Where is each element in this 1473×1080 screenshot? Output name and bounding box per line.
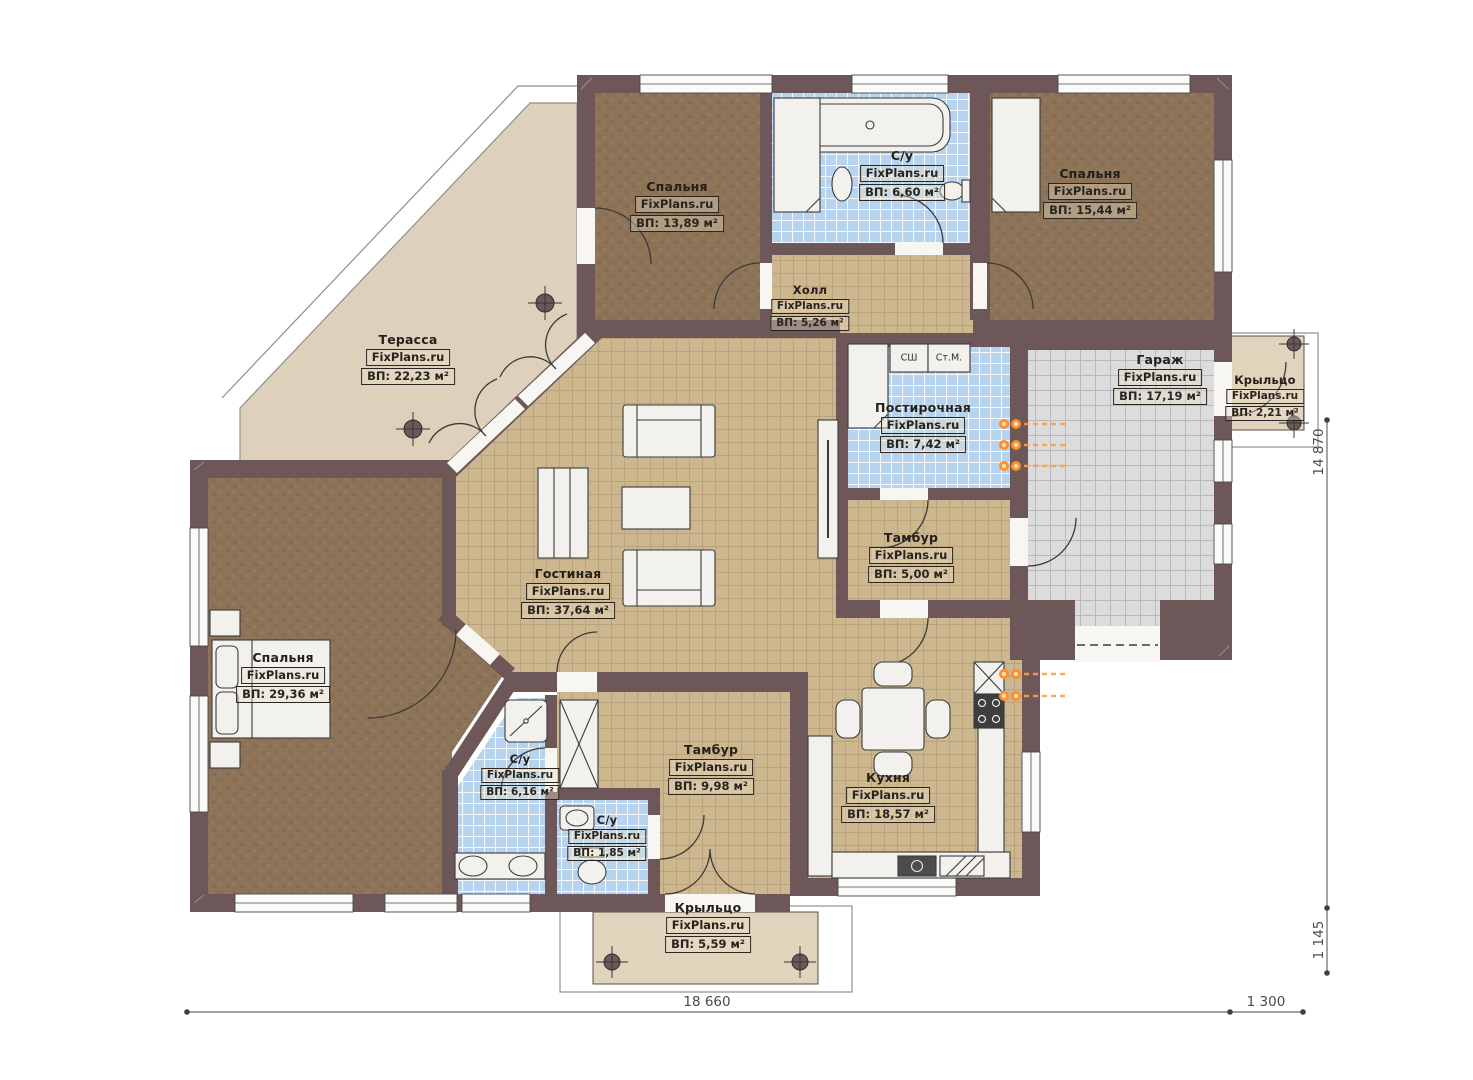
area-box: ВП: 15,44 м² xyxy=(1043,202,1137,219)
brand-box: FixPlans.ru xyxy=(669,759,754,776)
room-label-kitchen: Кухня FixPlans.ru ВП: 18,57 м² xyxy=(841,770,935,823)
room-label-terrace: Терасса FixPlans.ru ВП: 22,23 м² xyxy=(361,332,455,385)
room-label-bedroom-top-left: Спальня FixPlans.ru ВП: 13,89 м² xyxy=(630,179,724,232)
room-label-bedroom-left: Спальня FixPlans.ru ВП: 29,36 м² xyxy=(236,650,330,703)
room-label-bathroom-185: С/у FixPlans.ru ВП: 1,85 м² xyxy=(567,813,646,861)
bathtub xyxy=(800,98,950,152)
area-box: ВП: 22,23 м² xyxy=(361,368,455,385)
wardrobe xyxy=(992,98,1040,212)
double-washbasin xyxy=(455,853,545,879)
stove xyxy=(974,694,1004,728)
area-box: ВП: 13,89 м² xyxy=(630,215,724,232)
room-name: Спальня xyxy=(236,650,330,665)
sofa-bottom xyxy=(623,550,715,606)
floor-plan-page: Спальня FixPlans.ru ВП: 13,89 м² С/у Fix… xyxy=(0,0,1473,1080)
area-box: ВП: 1,85 м² xyxy=(567,846,646,861)
dimension-width-right: 1 300 xyxy=(1247,994,1286,1010)
built-in-closet xyxy=(560,700,598,788)
area-box: ВП: 5,59 м² xyxy=(665,936,751,953)
garage-door xyxy=(1075,626,1160,662)
area-box: ВП: 18,57 м² xyxy=(841,806,935,823)
cabinet xyxy=(538,468,588,558)
dishwasher xyxy=(940,856,984,876)
area-box: ВП: 5,00 м² xyxy=(868,566,954,583)
washbasin xyxy=(832,167,852,201)
room-label-garage: Гараж FixPlans.ru ВП: 17,19 м² xyxy=(1113,352,1207,405)
room-name: Гараж xyxy=(1113,352,1207,367)
room-name: С/у xyxy=(859,148,945,163)
area-box: ВП: 7,42 м² xyxy=(880,436,966,453)
brand-box: FixPlans.ru xyxy=(1226,389,1304,404)
dining-table xyxy=(862,688,924,750)
room-name: Кухня xyxy=(841,770,935,785)
brand-box: FixPlans.ru xyxy=(869,547,954,564)
dimension-height-bottom: 1 145 xyxy=(1311,921,1327,960)
area-box: ВП: 9,98 м² xyxy=(668,778,754,795)
brand-box: FixPlans.ru xyxy=(771,299,849,314)
area-box: ВП: 5,26 м² xyxy=(770,316,849,331)
area-box: ВП: 6,16 м² xyxy=(480,785,559,800)
brand-box: FixPlans.ru xyxy=(366,349,451,366)
dimension-height-main: 14 870 xyxy=(1311,428,1327,475)
nightstand xyxy=(210,610,240,636)
room-label-hall: Холл FixPlans.ru ВП: 5,26 м² xyxy=(770,283,849,331)
brand-box: FixPlans.ru xyxy=(881,417,966,434)
sofa-top xyxy=(623,405,715,457)
washing-machine-label: Ст.М. xyxy=(936,353,962,364)
room-label-bedroom-top-right: Спальня FixPlans.ru ВП: 15,44 м² xyxy=(1043,166,1137,219)
room-name: Спальня xyxy=(630,179,724,194)
brand-box: FixPlans.ru xyxy=(481,768,559,783)
shower xyxy=(505,700,547,742)
room-name: Спальня xyxy=(1043,166,1137,181)
room-label-porch-right: Крыльцо FixPlans.ru ВП: 2,21 м² xyxy=(1225,373,1304,421)
dryer-cabinet-label: СШ xyxy=(901,353,918,364)
room-label-laundry: Постирочная FixPlans.ru ВП: 7,42 м² xyxy=(875,400,971,453)
brand-box: FixPlans.ru xyxy=(846,787,931,804)
brand-box: FixPlans.ru xyxy=(568,829,646,844)
room-name: С/у xyxy=(480,752,559,766)
brand-box: FixPlans.ru xyxy=(526,583,611,600)
room-name: Постирочная xyxy=(875,400,971,415)
room-name: Тамбур xyxy=(668,742,754,757)
room-label-bathroom-top: С/у FixPlans.ru ВП: 6,60 м² xyxy=(859,148,945,201)
room-label-bathroom-616: С/у FixPlans.ru ВП: 6,16 м² xyxy=(480,752,559,800)
room-label-vestibule-big: Тамбур FixPlans.ru ВП: 9,98 м² xyxy=(668,742,754,795)
brand-box: FixPlans.ru xyxy=(666,917,751,934)
nightstand xyxy=(210,742,240,768)
tv-unit xyxy=(818,420,838,558)
coffee-table xyxy=(622,487,690,529)
room-label-vestibule-small: Тамбур FixPlans.ru ВП: 5,00 м² xyxy=(868,530,954,583)
room-name: Гостиная xyxy=(521,566,615,581)
brand-box: FixPlans.ru xyxy=(635,196,720,213)
area-box: ВП: 29,36 м² xyxy=(236,686,330,703)
room-name: С/у xyxy=(567,813,646,827)
brand-box: FixPlans.ru xyxy=(860,165,945,182)
brand-box: FixPlans.ru xyxy=(1118,369,1203,386)
room-label-porch-bottom: Крыльцо FixPlans.ru ВП: 5,59 м² xyxy=(665,900,751,953)
chair xyxy=(874,662,912,686)
room-name: Терасса xyxy=(361,332,455,347)
room-name: Холл xyxy=(770,283,849,297)
chair xyxy=(836,700,860,738)
area-box: ВП: 17,19 м² xyxy=(1113,388,1207,405)
chair xyxy=(926,700,950,738)
area-box: ВП: 6,60 м² xyxy=(859,184,945,201)
brand-box: FixPlans.ru xyxy=(1048,183,1133,200)
room-name: Крыльцо xyxy=(1225,373,1304,387)
room-name: Крыльцо xyxy=(665,900,751,915)
room-label-living-room: Гостиная FixPlans.ru ВП: 37,64 м² xyxy=(521,566,615,619)
area-box: ВП: 37,64 м² xyxy=(521,602,615,619)
room-name: Тамбур xyxy=(868,530,954,545)
kitchen-sink xyxy=(898,856,936,876)
wardrobe xyxy=(774,98,820,212)
brand-box: FixPlans.ru xyxy=(241,667,326,684)
dimension-width-main: 18 660 xyxy=(683,994,730,1010)
area-box: ВП: 2,21 м² xyxy=(1225,406,1304,421)
